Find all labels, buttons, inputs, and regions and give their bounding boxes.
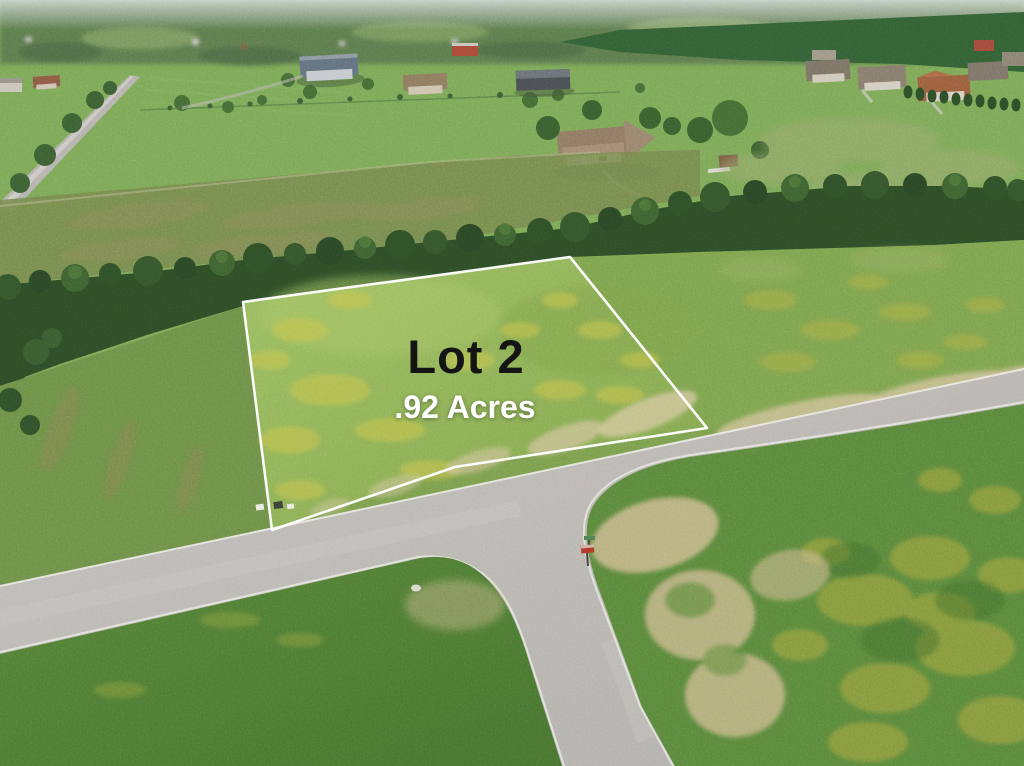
aerial-photo <box>0 0 1024 766</box>
aerial-photo-frame: Lot 2 .92 Acres <box>0 0 1024 766</box>
photo-grain <box>0 0 1024 766</box>
